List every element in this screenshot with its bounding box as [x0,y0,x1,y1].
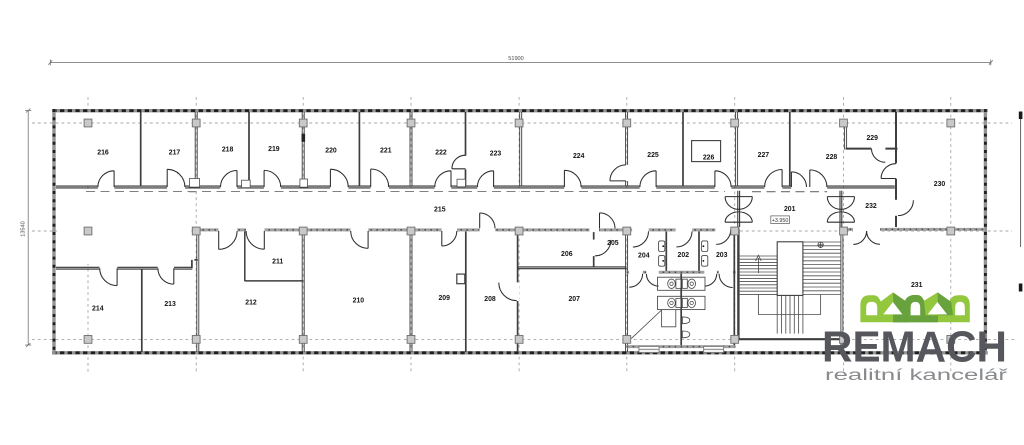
svg-text:205: 205 [607,240,619,247]
svg-text:realitní kancelář: realitní kancelář [825,367,1008,384]
svg-text:211: 211 [272,259,283,266]
svg-text:204: 204 [638,252,650,259]
svg-text:230: 230 [934,181,946,188]
svg-text:217: 217 [169,149,181,156]
svg-text:215: 215 [434,206,446,213]
svg-text:220: 220 [325,148,337,155]
svg-text:203: 203 [716,252,728,259]
svg-text:225: 225 [647,152,659,159]
svg-text:209: 209 [438,295,450,302]
svg-text:218: 218 [222,147,234,154]
svg-text:216: 216 [97,149,109,156]
svg-text:51900: 51900 [508,56,524,62]
svg-text:221: 221 [380,147,392,154]
svg-text:210: 210 [353,297,365,304]
svg-text:222: 222 [435,150,447,157]
svg-text:201: 201 [784,206,796,213]
svg-text:212: 212 [245,300,257,307]
svg-text:REMACH: REMACH [822,323,1007,372]
svg-text:219: 219 [268,146,280,153]
svg-text:229: 229 [866,135,878,142]
svg-text:226: 226 [703,155,715,162]
svg-text:214: 214 [92,306,104,313]
svg-text:206: 206 [561,251,573,258]
svg-text:13540: 13540 [20,221,26,237]
svg-text:224: 224 [573,153,585,160]
svg-text:223: 223 [490,150,502,157]
svg-text:231: 231 [911,282,923,289]
svg-text:+3.950: +3.950 [772,218,789,224]
svg-text:232: 232 [865,203,877,210]
svg-text:208: 208 [484,296,496,303]
svg-text:228: 228 [826,154,838,161]
svg-text:227: 227 [758,152,770,159]
svg-text:202: 202 [678,252,690,259]
svg-text:213: 213 [164,301,176,308]
svg-text:207: 207 [568,296,580,303]
